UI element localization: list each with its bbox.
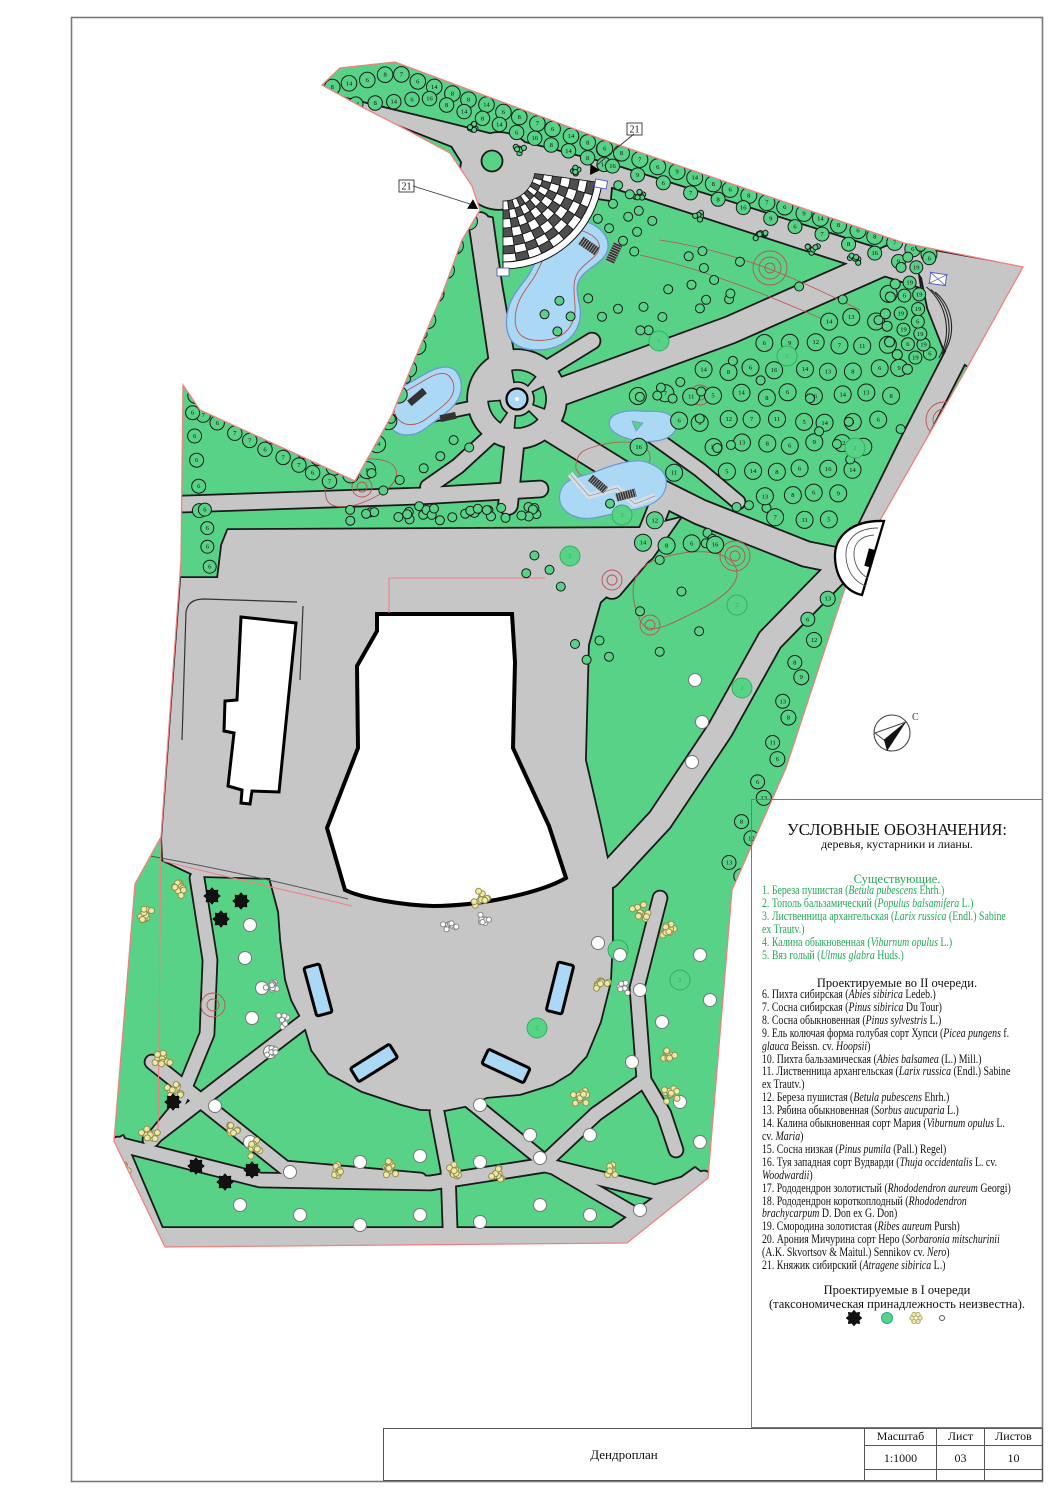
svg-text:2: 2 <box>785 353 788 360</box>
svg-text:21: 21 <box>630 125 640 136</box>
svg-text:14: 14 <box>750 468 757 475</box>
svg-text:13: 13 <box>848 314 855 321</box>
svg-text:8: 8 <box>665 543 668 550</box>
svg-text:8: 8 <box>740 819 743 826</box>
svg-text:8: 8 <box>712 181 715 188</box>
svg-text:12: 12 <box>652 517 659 524</box>
svg-text:19: 19 <box>915 306 922 313</box>
svg-text:14: 14 <box>691 175 698 182</box>
svg-text:19: 19 <box>916 291 923 298</box>
svg-text:16: 16 <box>426 96 433 103</box>
svg-text:14: 14 <box>640 540 647 547</box>
svg-text:13: 13 <box>825 369 832 376</box>
svg-text:14: 14 <box>565 148 572 155</box>
svg-text:9: 9 <box>769 215 772 222</box>
svg-text:16: 16 <box>825 466 832 473</box>
svg-text:8: 8 <box>765 395 768 402</box>
svg-text:13: 13 <box>762 493 769 500</box>
svg-text:8: 8 <box>518 114 521 121</box>
svg-text:2: 2 <box>535 1025 538 1032</box>
svg-text:1: 1 <box>657 338 660 345</box>
svg-text:14: 14 <box>483 102 490 109</box>
svg-text:8: 8 <box>374 100 377 107</box>
svg-text:8: 8 <box>727 369 730 376</box>
svg-text:8: 8 <box>889 393 892 400</box>
svg-text:8: 8 <box>851 369 854 376</box>
svg-text:5: 5 <box>827 516 830 523</box>
svg-text:11: 11 <box>859 343 865 350</box>
svg-text:19: 19 <box>917 331 924 338</box>
svg-text:19: 19 <box>920 342 927 349</box>
svg-text:13: 13 <box>739 440 746 447</box>
svg-text:9: 9 <box>837 490 840 497</box>
svg-text:11: 11 <box>801 517 807 524</box>
svg-text:8: 8 <box>775 469 778 476</box>
svg-text:19: 19 <box>913 264 920 271</box>
svg-text:12: 12 <box>812 339 819 346</box>
svg-text:16: 16 <box>871 250 878 257</box>
svg-text:9: 9 <box>800 674 803 681</box>
svg-text:13: 13 <box>863 390 870 397</box>
svg-text:8: 8 <box>873 233 876 240</box>
svg-text:8: 8 <box>467 97 470 104</box>
svg-text:12: 12 <box>725 416 732 423</box>
svg-text:5: 5 <box>711 393 714 400</box>
svg-text:14: 14 <box>802 366 809 373</box>
svg-text:19: 19 <box>900 327 907 334</box>
svg-text:16: 16 <box>712 542 719 549</box>
svg-text:8: 8 <box>787 715 790 722</box>
svg-text:14: 14 <box>496 121 503 128</box>
svg-text:13: 13 <box>726 860 733 867</box>
svg-text:8: 8 <box>445 102 448 109</box>
svg-text:16: 16 <box>531 135 538 142</box>
svg-text:8: 8 <box>481 115 484 122</box>
svg-text:3: 3 <box>620 512 623 519</box>
svg-text:9: 9 <box>675 169 678 176</box>
svg-text:8: 8 <box>747 192 750 199</box>
svg-text:9: 9 <box>636 172 639 179</box>
svg-text:5: 5 <box>725 469 728 476</box>
svg-text:8: 8 <box>586 139 589 146</box>
svg-text:19: 19 <box>906 280 913 287</box>
svg-text:14: 14 <box>431 84 438 91</box>
svg-text:16: 16 <box>740 205 747 212</box>
svg-text:14: 14 <box>817 215 824 222</box>
svg-text:2: 2 <box>678 977 681 984</box>
svg-text:21: 21 <box>402 182 412 193</box>
svg-text:8: 8 <box>383 72 386 79</box>
svg-text:11: 11 <box>774 416 780 423</box>
svg-text:14: 14 <box>839 391 846 398</box>
svg-text:8: 8 <box>451 91 454 98</box>
svg-text:14: 14 <box>700 366 707 373</box>
svg-text:19: 19 <box>912 355 919 362</box>
svg-text:14: 14 <box>346 80 353 87</box>
svg-text:11: 11 <box>671 470 677 477</box>
svg-text:8: 8 <box>847 241 850 248</box>
svg-text:14: 14 <box>826 319 833 326</box>
svg-text:5: 5 <box>802 419 805 426</box>
svg-text:9: 9 <box>802 210 805 217</box>
svg-text:14: 14 <box>461 109 468 116</box>
svg-text:9: 9 <box>897 365 900 372</box>
svg-text:2: 2 <box>735 602 738 609</box>
svg-text:16: 16 <box>609 163 616 170</box>
svg-text:8: 8 <box>620 150 623 157</box>
svg-text:C: C <box>912 712 919 723</box>
svg-text:11: 11 <box>769 740 775 747</box>
svg-text:14: 14 <box>568 133 575 140</box>
svg-text:9: 9 <box>813 439 816 446</box>
svg-text:8: 8 <box>791 492 794 499</box>
svg-text:2: 2 <box>853 445 856 452</box>
svg-text:12: 12 <box>811 637 818 644</box>
svg-text:8: 8 <box>586 155 589 162</box>
svg-text:8: 8 <box>766 441 769 448</box>
svg-text:8: 8 <box>837 222 840 229</box>
svg-text:13: 13 <box>824 596 831 603</box>
svg-text:14: 14 <box>821 420 828 427</box>
svg-text:2: 2 <box>740 685 743 692</box>
svg-text:16: 16 <box>635 444 642 451</box>
svg-text:14: 14 <box>849 467 856 474</box>
svg-text:11: 11 <box>688 394 694 401</box>
svg-text:8: 8 <box>793 660 796 667</box>
svg-text:2: 2 <box>568 553 571 560</box>
svg-text:13: 13 <box>779 698 786 705</box>
svg-text:8: 8 <box>716 196 719 203</box>
svg-text:14: 14 <box>391 99 398 106</box>
svg-text:8: 8 <box>550 142 553 149</box>
svg-text:14: 14 <box>738 390 745 397</box>
svg-text:19: 19 <box>897 310 904 317</box>
svg-text:16: 16 <box>771 367 778 374</box>
